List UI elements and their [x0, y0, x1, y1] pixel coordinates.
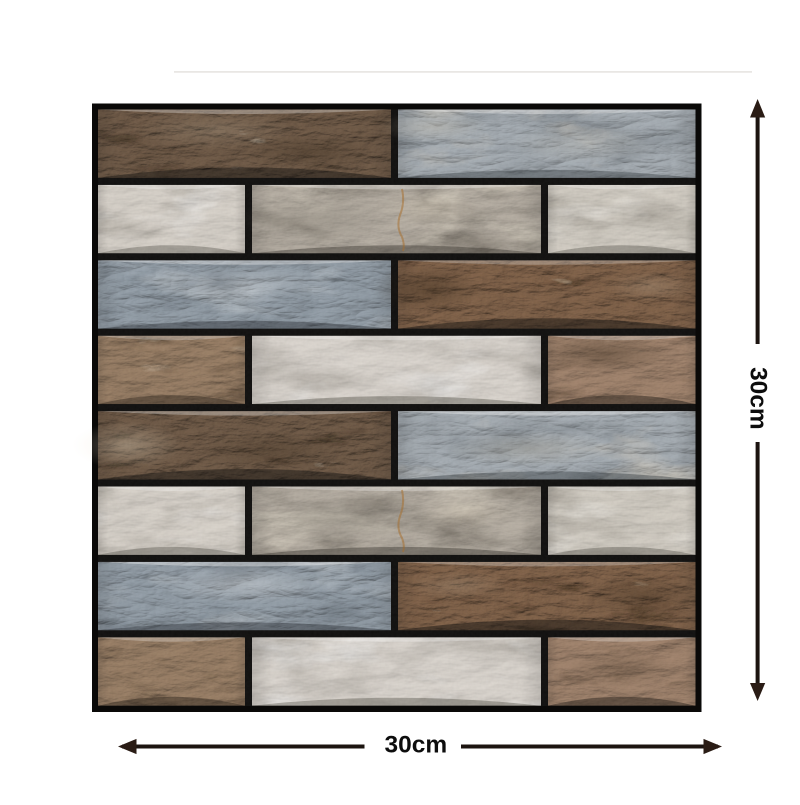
svg-text:30cm: 30cm: [385, 732, 448, 759]
svg-text:30cm: 30cm: [745, 367, 772, 430]
